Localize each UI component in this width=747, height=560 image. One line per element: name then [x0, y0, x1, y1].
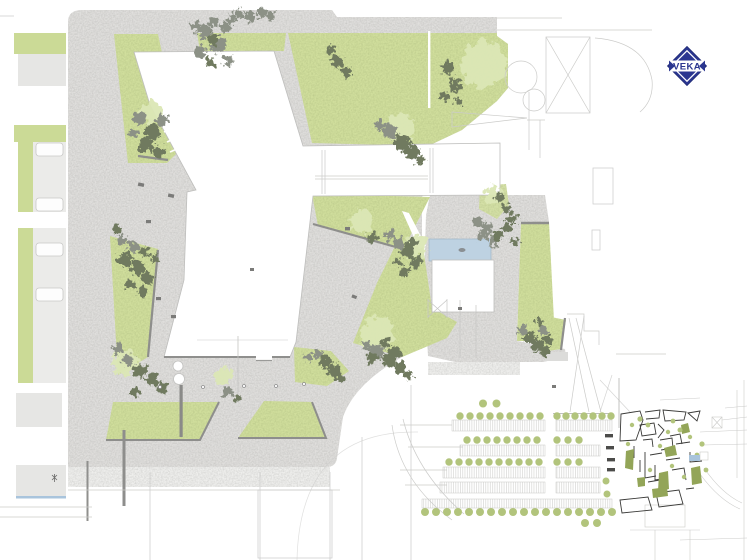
svg-text:VEKA: VEKA: [673, 62, 701, 73]
